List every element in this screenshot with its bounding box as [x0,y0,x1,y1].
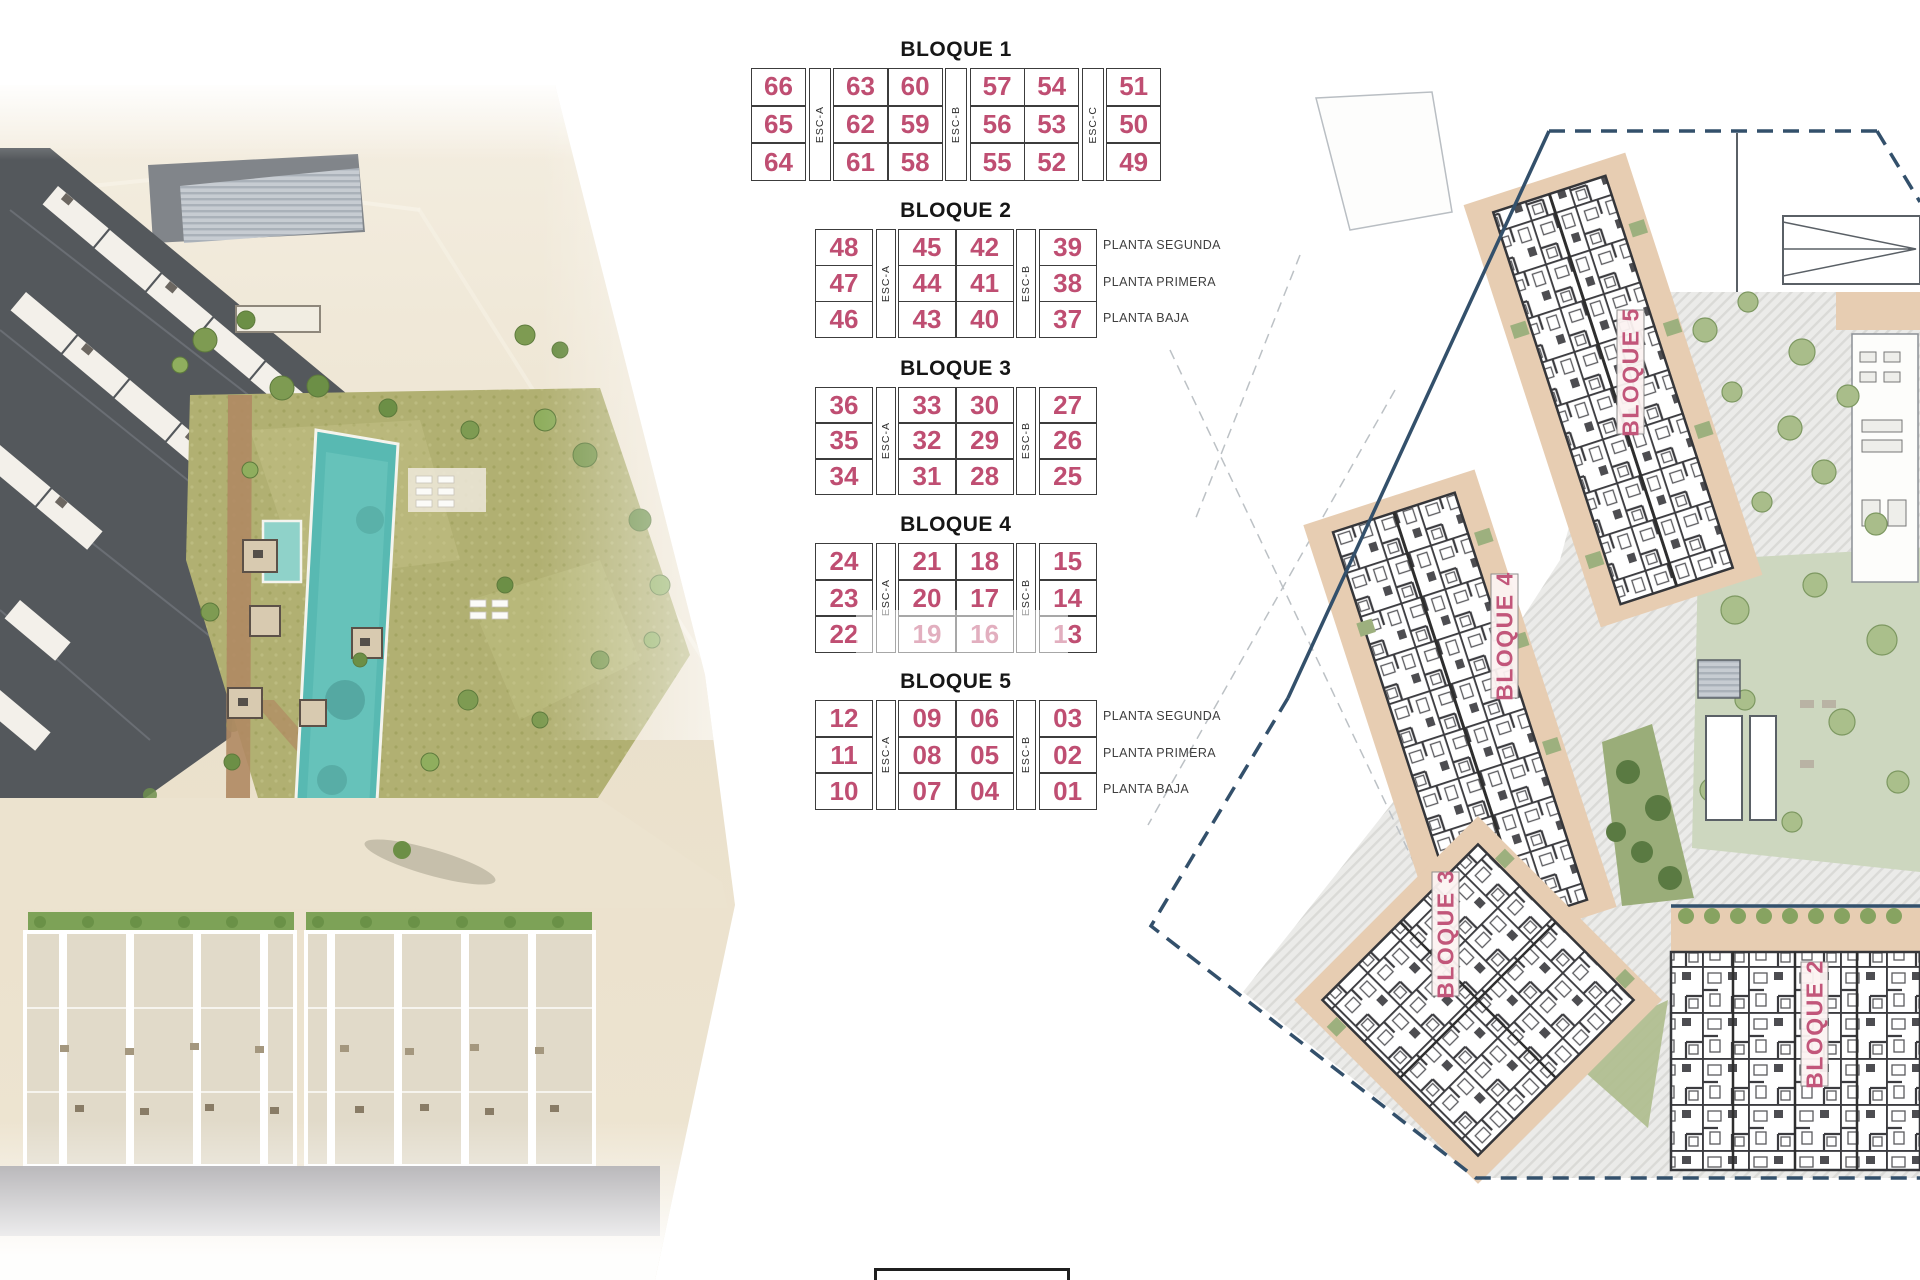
unit-number-cell: 26 [1040,424,1096,458]
unit-number-cell: 06 [957,701,1013,736]
unit-number-cell: 61 [834,144,887,180]
unit-number-cell: 53 [1025,107,1078,143]
planta-label: PLANTA BAJA [1103,782,1189,796]
unit-number-cell: 55 [971,144,1024,180]
unit-number-cell: 49 [1107,144,1160,180]
unit-column-group: 454244414340 [898,229,1014,338]
unit-number-cell: 11 [816,738,872,773]
unit-number-cell: 59 [889,107,942,143]
unit-table-bloque-5: BLOQUE 5121110ESC-A090608050704ESC-B0302… [815,670,1097,810]
unit-column-group: 515049 [1106,68,1161,181]
unit-number-cell: 50 [1107,107,1160,143]
unit-number-cell: 03 [1040,701,1096,736]
unit-number-cell: 51 [1107,69,1160,105]
stairwell-label: ESC-B [1020,265,1032,302]
unit-table-bloque-2: BLOQUE 2484746ESC-A454244414340ESC-B3938… [815,199,1097,338]
stairwell-label: ESC-B [1020,736,1032,773]
stairwell-label: ESC-A [880,422,892,459]
unit-number-cell: 12 [816,701,872,736]
unit-number-cell: 62 [834,107,887,143]
stairwell-cell: ESC-A [876,387,896,495]
unit-number-cell: 56 [971,107,1024,143]
unit-number-cell: 37 [1040,302,1096,337]
unit-number-cell: 25 [1040,460,1096,494]
unit-number-cell: 43 [899,302,955,337]
unit-number-cell: 24 [816,544,872,579]
unit-number-cell: 40 [957,302,1013,337]
stairwell-cell: ESC-B [945,68,967,181]
legend-box [874,1268,1070,1280]
unit-number-cell: 35 [816,424,872,458]
unit-number-cell: 32 [899,424,955,458]
stairwell-label: ESC-A [814,106,826,143]
stairwell-label: ESC-B [1020,422,1032,459]
unit-number-cell: 44 [899,266,955,301]
stairwell-label: ESC-C [1087,106,1099,144]
table-body: 666564ESC-A636062596158ESC-B575456535552… [751,68,1161,181]
unit-number-cell: 57 [971,69,1024,105]
watermark-overlay [856,610,1068,660]
stairwell-label: ESC-B [950,106,962,143]
unit-number-cell: 18 [957,544,1013,579]
stairwell-cell: ESC-C [1082,68,1104,181]
page-canvas: BLOQUE 5 BLOQUE 4 BLOQUE 3 BLOQUE 2 BLOQ… [0,0,1920,1280]
stairwell-label: ESC-A [880,265,892,302]
stairwell-cell: ESC-A [876,700,896,810]
unit-column-group: 666564 [751,68,806,181]
stairwell-label: ESC-A [880,736,892,773]
table-body: 121110ESC-A090608050704ESC-B030201 [815,700,1097,810]
unit-number-cell: 15 [1040,544,1096,579]
unit-number-cell: 28 [957,460,1013,494]
unit-column-group: 393837 [1039,229,1097,338]
unit-number-cell: 04 [957,774,1013,809]
planta-label: PLANTA BAJA [1103,311,1189,325]
planta-label: PLANTA PRIMERA [1103,746,1216,760]
table-title: BLOQUE 1 [751,38,1161,68]
table-title: BLOQUE 2 [815,199,1097,229]
unit-number-cell: 07 [899,774,955,809]
unit-number-cell: 46 [816,302,872,337]
unit-number-cell: 54 [1025,69,1078,105]
table-title: BLOQUE 4 [815,513,1097,543]
unit-number-cell: 08 [899,738,955,773]
unit-number-cell: 30 [957,388,1013,422]
planta-label: PLANTA SEGUNDA [1103,238,1221,252]
unit-column-group: 333032293128 [898,387,1014,495]
unit-number-cell: 66 [752,69,805,105]
unit-column-group: 030201 [1039,700,1097,810]
unit-number-cell: 48 [816,230,872,265]
unit-number-cell: 27 [1040,388,1096,422]
unit-number-cell: 63 [834,69,887,105]
stairwell-cell: ESC-B [1016,700,1036,810]
unit-number-cell: 05 [957,738,1013,773]
unit-column-group: 272625 [1039,387,1097,495]
unit-number-cell: 09 [899,701,955,736]
table-body: 484746ESC-A454244414340ESC-B393837 [815,229,1097,338]
unit-table-bloque-3: BLOQUE 3363534ESC-A333032293128ESC-B2726… [815,357,1097,495]
table-title: BLOQUE 5 [815,670,1097,700]
unit-number-cell: 41 [957,266,1013,301]
unit-number-cell: 65 [752,107,805,143]
unit-number-cell: 21 [899,544,955,579]
unit-number-cell: 42 [957,230,1013,265]
table-body: 363534ESC-A333032293128ESC-B272625 [815,387,1097,495]
stairwell-cell: ESC-B [1016,229,1036,338]
unit-number-cell: 60 [889,69,942,105]
unit-number-cell: 02 [1040,738,1096,773]
unit-table-bloque-1: BLOQUE 1666564ESC-A636062596158ESC-B5754… [751,38,1161,181]
unit-number-cell: 58 [889,144,942,180]
unit-number-cell: 10 [816,774,872,809]
unit-column-group: 363534 [815,387,873,495]
unit-column-group: 484746 [815,229,873,338]
unit-number-cell: 31 [899,460,955,494]
unit-number-cell: 36 [816,388,872,422]
unit-number-cell: 34 [816,460,872,494]
unit-column-group: 575456535552 [970,68,1080,181]
stairwell-cell: ESC-A [809,68,831,181]
unit-number-cell: 47 [816,266,872,301]
unit-number-cell: 33 [899,388,955,422]
stairwell-cell: ESC-B [1016,387,1036,495]
table-title: BLOQUE 3 [815,357,1097,387]
unit-number-cell: 45 [899,230,955,265]
unit-column-group: 636062596158 [833,68,943,181]
unit-number-cell: 01 [1040,774,1096,809]
unit-number-cell: 38 [1040,266,1096,301]
unit-number-cell: 64 [752,144,805,180]
stairwell-cell: ESC-A [876,229,896,338]
planta-label: PLANTA SEGUNDA [1103,709,1221,723]
unit-number-cell: 39 [1040,230,1096,265]
planta-label: PLANTA PRIMERA [1103,275,1216,289]
unit-column-group: 090608050704 [898,700,1014,810]
unit-number-cell: 29 [957,424,1013,458]
unit-number-cell: 52 [1025,144,1078,180]
unit-column-group: 121110 [815,700,873,810]
